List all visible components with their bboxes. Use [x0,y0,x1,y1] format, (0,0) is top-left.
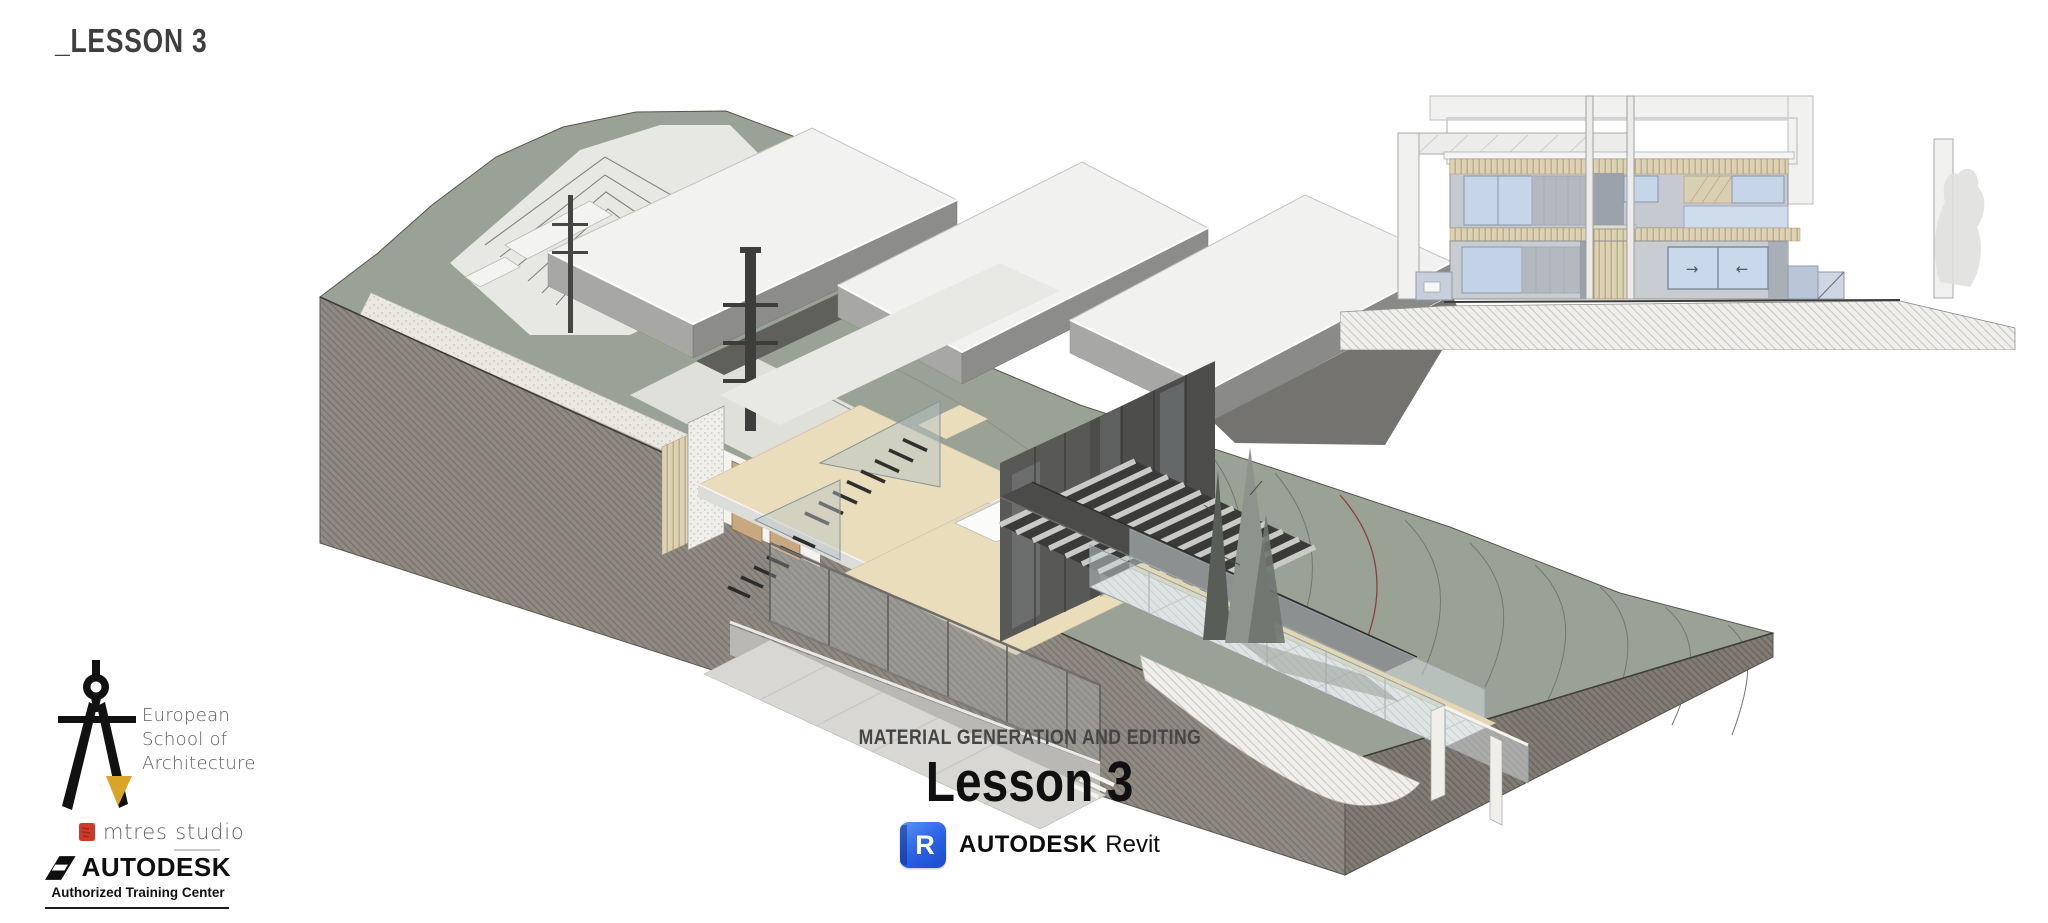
autodesk-atc-logo: AUTODESK Authorized Training Center [45,852,231,909]
sliding-door: → ← [1668,247,1768,289]
school-name-line: European [142,704,256,728]
autodesk-wordmark: AUTODESK [959,831,1097,858]
studio-logo: mtres studio [78,820,245,844]
lesson-kicker: MATERIAL GENERATION AND EDITING [780,726,1280,750]
slide-right-arrow-icon: → [1686,260,1699,278]
school-name-line: Architecture [142,752,256,776]
revit-r-icon: R [900,822,946,868]
lesson-tag-text: _LESSON 3 [55,22,207,60]
atc-divider-line [45,907,229,909]
slide-left-arrow-icon: ← [1736,260,1749,278]
studio-sub-tagline-line [174,849,220,851]
atc-tagline-text: Authorized Training Center [45,885,231,900]
title-block: MATERIAL GENERATION AND EDITING Lesson 3… [780,726,1280,868]
gold-triangle [106,776,132,806]
autodesk-a-icon [45,854,76,882]
column [1627,96,1634,299]
column [1586,96,1593,299]
lesson-title-text: Lesson 3 [926,754,1134,811]
lesson-tag: _LESSON 3 [55,22,246,60]
window-band [1684,206,1788,228]
drafting-compass-icon [58,660,138,810]
autodesk-brand-row: AUTODESK [45,852,231,883]
slide-canvas: { "page": {"width": 2048, "height": 923,… [0,0,2048,923]
lesson-title: Lesson 3 [780,754,1280,811]
school-name: European School of Architecture [142,704,256,776]
window [1732,176,1784,203]
revit-icon-letter: R [915,830,935,861]
software-lockup: R AUTODESKRevit [780,822,1280,868]
school-logo: European School of Architecture [58,660,358,820]
window [1462,247,1522,293]
revit-product-name: Revit [1105,831,1160,858]
building-elevation-drawing: → ← [1340,82,2020,350]
school-name-line: School of [142,728,256,752]
entrance-wood-slats [1594,229,1630,299]
autodesk-wordmark-footer: AUTODESK [82,852,231,883]
wood-louver-screen [662,435,688,555]
facade: → ← [1444,152,1800,299]
red-square-icon [78,822,96,842]
ground-hatch [1340,301,2015,350]
studio-name-text: mtres studio [103,820,245,844]
software-name: AUTODESKRevit [959,831,1160,859]
lesson-kicker-text: MATERIAL GENERATION AND EDITING [859,726,1202,750]
